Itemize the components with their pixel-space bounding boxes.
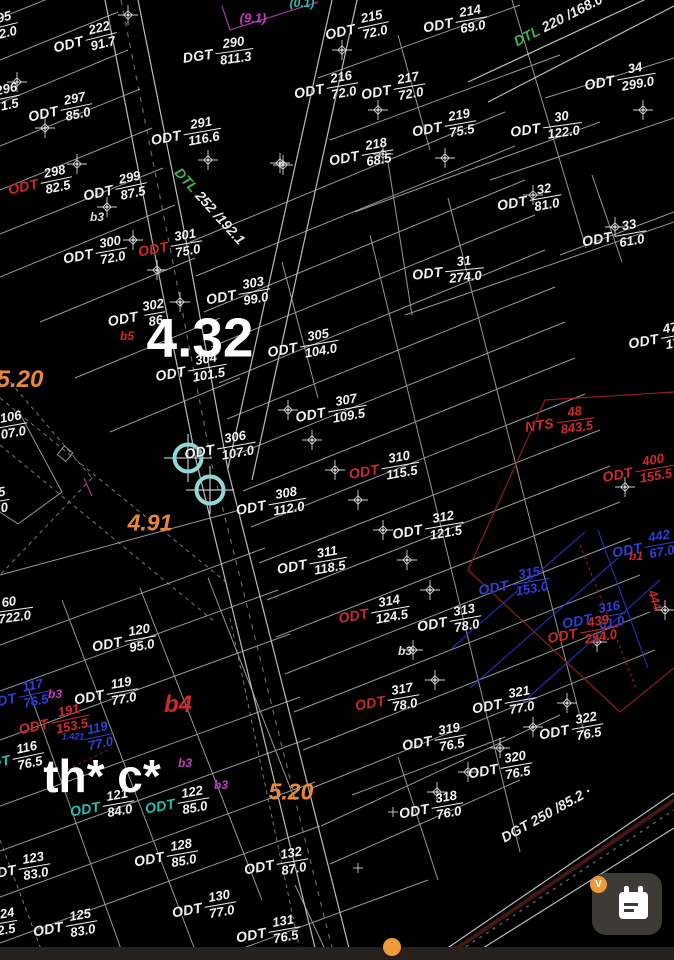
parcel-center-marker	[425, 670, 445, 690]
parcel-center-marker	[273, 155, 293, 175]
roads	[105, 0, 674, 960]
parcel-center-marker	[523, 185, 543, 205]
parcel-center-marker	[373, 520, 393, 540]
parcel-center-marker	[7, 72, 27, 92]
cadastral-map-view: 952.0ODT22291.7DGT290811.3ODT21572.0ODT2…	[0, 0, 674, 960]
parcel-center-marker	[615, 477, 635, 497]
parcel-center-marker	[170, 292, 190, 312]
parcel-center-marker	[35, 118, 55, 138]
calendar-badge: V	[590, 876, 607, 893]
parcel-center-marker	[587, 632, 607, 652]
parcel-center-marker	[373, 144, 393, 164]
parcel-center-marker	[302, 430, 322, 450]
parcel-center-marker	[270, 153, 290, 173]
parcel-center-marker	[557, 693, 577, 713]
map-linework	[0, 0, 674, 960]
parcel-center-marker	[118, 5, 138, 25]
parcel-center-marker	[325, 460, 345, 480]
parcel-center-marker	[198, 150, 218, 170]
calendar-icon	[598, 874, 668, 936]
parcel-center-marker	[420, 580, 440, 600]
parcel-center-marker	[123, 230, 143, 250]
parcel-center-marker	[427, 782, 447, 802]
parcel-center-marker	[67, 154, 87, 174]
parcel-center-marker	[368, 100, 388, 120]
parcel-center-marker	[523, 717, 543, 737]
bottom-bar-orange-button[interactable]	[383, 938, 401, 956]
magenta-boundaries	[84, 2, 318, 496]
parcel-center-marker	[388, 807, 398, 817]
marker-layer	[7, 5, 674, 873]
parcel-center-marker	[332, 40, 352, 60]
parcel-center-marker	[458, 762, 478, 782]
parcel-center-marker	[97, 197, 117, 217]
selected-point-marker[interactable]	[186, 466, 234, 514]
bottom-bar	[0, 947, 674, 960]
parcel-center-marker	[348, 490, 368, 510]
calendar-widget-button[interactable]: V	[592, 873, 662, 935]
parcel-center-marker	[655, 600, 674, 620]
red-boundaries	[62, 392, 674, 772]
parcel-center-marker	[435, 148, 455, 168]
parcel-center-marker	[397, 550, 417, 570]
selected-point-marker[interactable]	[164, 434, 212, 482]
parcel-center-marker	[403, 640, 423, 660]
parcel-center-marker	[353, 863, 363, 873]
parcel-center-marker	[633, 100, 653, 120]
parcel-center-marker	[278, 400, 298, 420]
